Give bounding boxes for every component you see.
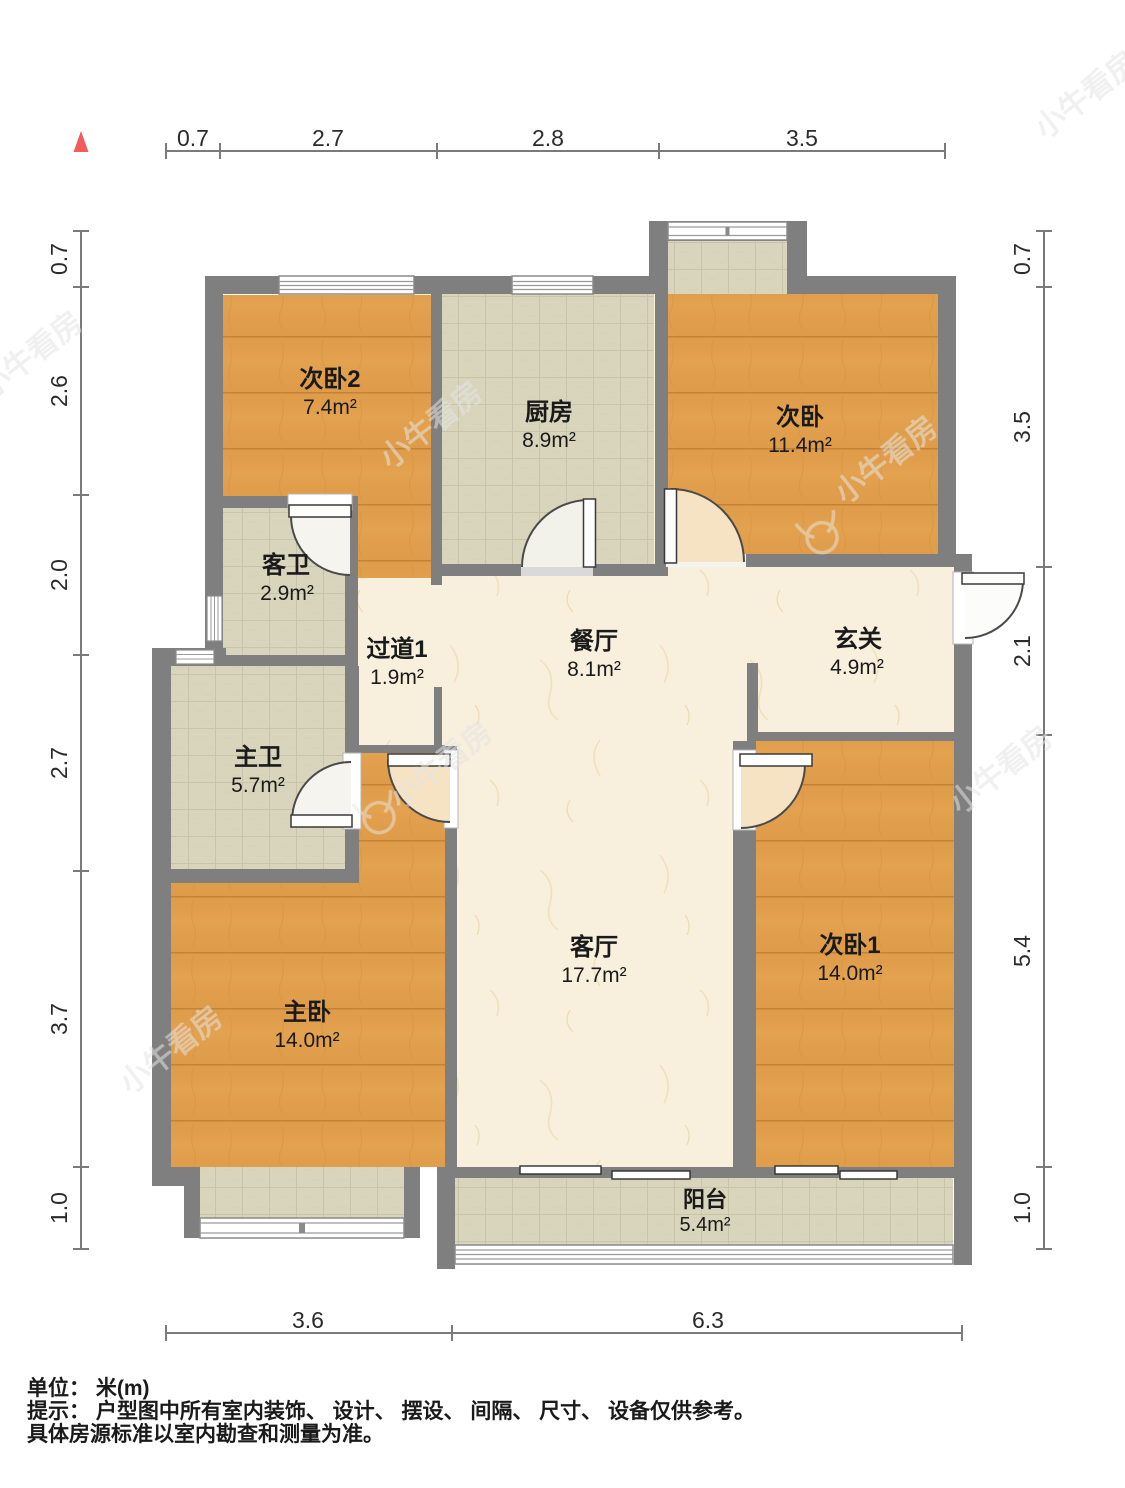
svg-text:17.7m²: 17.7m² bbox=[561, 964, 626, 987]
svg-text:单位： 米(m): 单位： 米(m) bbox=[27, 1376, 150, 1400]
svg-text:3.7: 3.7 bbox=[46, 1003, 72, 1035]
svg-text:具体房源标准以室内勘查和测量为准。: 具体房源标准以室内勘查和测量为准。 bbox=[27, 1422, 384, 1446]
svg-text:8.9m²: 8.9m² bbox=[522, 429, 576, 452]
svg-text:0.7: 0.7 bbox=[1009, 243, 1035, 275]
svg-text:客厅: 客厅 bbox=[570, 933, 618, 961]
svg-text:1.0: 1.0 bbox=[1009, 1192, 1035, 1224]
svg-text:3.6: 3.6 bbox=[292, 1307, 324, 1333]
svg-text:11.4m²: 11.4m² bbox=[768, 434, 832, 457]
svg-text:主卫: 主卫 bbox=[234, 744, 282, 771]
svg-text:厨房: 厨房 bbox=[525, 398, 573, 426]
svg-text:客卫: 客卫 bbox=[262, 551, 310, 579]
svg-text:提示： 户型图中所有室内装饰、 设计、 摆设、 间隔、 尺寸: 提示： 户型图中所有室内装饰、 设计、 摆设、 间隔、 尺寸、 设备仅供参考。 bbox=[27, 1399, 755, 1423]
svg-text:2.7: 2.7 bbox=[46, 747, 72, 779]
svg-text:次卧2: 次卧2 bbox=[299, 366, 360, 393]
svg-text:2.8: 2.8 bbox=[532, 125, 564, 151]
svg-text:14.0m²: 14.0m² bbox=[817, 962, 882, 985]
svg-text:8.1m²: 8.1m² bbox=[567, 658, 621, 681]
svg-text:0.7: 0.7 bbox=[177, 125, 209, 151]
svg-text:7.4m²: 7.4m² bbox=[303, 396, 357, 419]
svg-text:5.4m²: 5.4m² bbox=[679, 1214, 730, 1236]
svg-text:主卧: 主卧 bbox=[283, 999, 331, 1026]
svg-text:3.5: 3.5 bbox=[1009, 411, 1035, 443]
svg-text:1.9m²: 1.9m² bbox=[370, 666, 424, 689]
svg-text:餐厅: 餐厅 bbox=[570, 628, 618, 655]
svg-text:2.1: 2.1 bbox=[1009, 635, 1035, 667]
svg-text:6.3: 6.3 bbox=[692, 1307, 724, 1333]
svg-text:5.4: 5.4 bbox=[1009, 935, 1035, 967]
svg-text:2.6: 2.6 bbox=[46, 375, 72, 407]
svg-text:1.0: 1.0 bbox=[46, 1192, 72, 1224]
svg-text:5.7m²: 5.7m² bbox=[231, 774, 285, 797]
svg-text:过道1: 过道1 bbox=[366, 635, 427, 663]
svg-text:玄关: 玄关 bbox=[834, 625, 882, 653]
svg-text:14.0m²: 14.0m² bbox=[274, 1029, 339, 1052]
svg-text:4.9m²: 4.9m² bbox=[830, 656, 884, 679]
svg-text:阳台: 阳台 bbox=[683, 1187, 727, 1212]
svg-text:2.7: 2.7 bbox=[312, 125, 344, 151]
svg-text:0.7: 0.7 bbox=[46, 243, 72, 275]
svg-text:2.9m²: 2.9m² bbox=[260, 582, 314, 605]
svg-text:2.0: 2.0 bbox=[46, 559, 72, 591]
svg-text:3.5: 3.5 bbox=[786, 125, 818, 151]
svg-text:次卧: 次卧 bbox=[776, 404, 824, 431]
svg-text:次卧1: 次卧1 bbox=[819, 932, 880, 959]
